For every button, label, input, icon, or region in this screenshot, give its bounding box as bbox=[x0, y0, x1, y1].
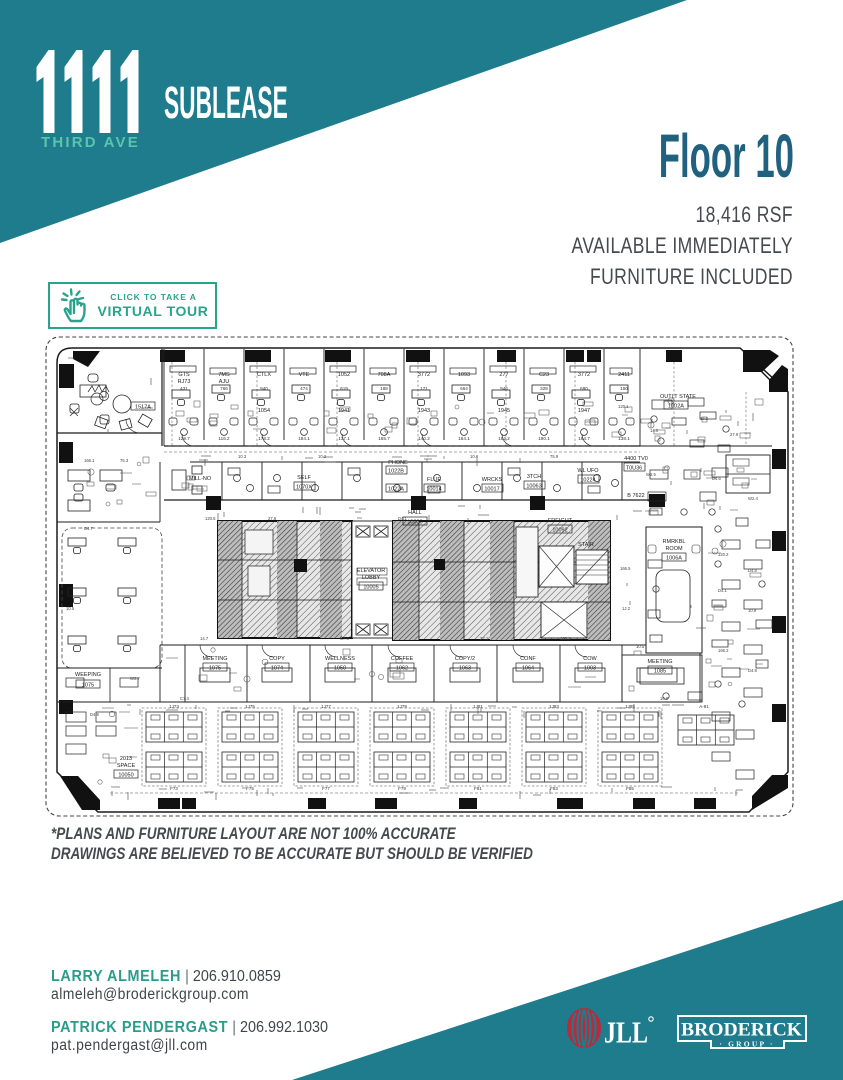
svg-text:1J.2: 1J.2 bbox=[622, 606, 631, 611]
svg-text:140.2: 140.2 bbox=[418, 436, 430, 441]
svg-text:AJU: AJU bbox=[219, 379, 229, 385]
svg-text:MEETING: MEETING bbox=[647, 659, 672, 665]
svg-text:F77: F77 bbox=[322, 786, 330, 791]
svg-text:10050: 10050 bbox=[118, 773, 133, 779]
svg-text:10224: 10224 bbox=[580, 478, 595, 484]
svg-text:FREIGHT: FREIGHT bbox=[548, 518, 573, 524]
svg-text:F83: F83 bbox=[550, 786, 558, 791]
svg-text:10.5: 10.5 bbox=[66, 606, 75, 611]
svg-text:27.1: 27.1 bbox=[480, 636, 489, 641]
svg-text:75.3: 75.3 bbox=[120, 458, 129, 463]
svg-text:RMRKBL: RMRKBL bbox=[663, 539, 686, 545]
svg-text:184.7: 184.7 bbox=[578, 436, 590, 441]
svg-text:164.1: 164.1 bbox=[458, 436, 470, 441]
svg-text:431: 431 bbox=[180, 386, 188, 391]
svg-text:F75: F75 bbox=[246, 786, 254, 791]
svg-text:C7.4: C7.4 bbox=[180, 696, 190, 701]
svg-text:328: 328 bbox=[540, 386, 548, 391]
svg-text:LOBBY: LOBBY bbox=[362, 575, 381, 581]
svg-text:664: 664 bbox=[460, 386, 468, 391]
svg-text:COPY/2: COPY/2 bbox=[455, 656, 475, 662]
svg-text:1093: 1093 bbox=[458, 372, 470, 378]
svg-text:2411: 2411 bbox=[618, 372, 630, 378]
svg-text:182.2: 182.2 bbox=[498, 436, 510, 441]
svg-text:1052: 1052 bbox=[338, 372, 350, 378]
svg-text:171: 171 bbox=[420, 386, 428, 391]
svg-text:A-81: A-81 bbox=[699, 704, 709, 709]
svg-text:C7.6: C7.6 bbox=[340, 636, 350, 641]
svg-text:166.1: 166.1 bbox=[84, 458, 95, 463]
svg-text:10.3: 10.3 bbox=[238, 454, 247, 459]
svg-text:1517A: 1517A bbox=[135, 405, 151, 411]
svg-text:T0U36: T0U36 bbox=[626, 466, 643, 472]
svg-text:WL UFO: WL UFO bbox=[577, 468, 599, 474]
svg-text:WEEPING: WEEPING bbox=[75, 672, 101, 678]
svg-text:10.5: 10.5 bbox=[636, 644, 645, 649]
svg-text:10000: 10000 bbox=[407, 520, 422, 526]
svg-text:1054: 1054 bbox=[258, 408, 270, 414]
svg-text:1075: 1075 bbox=[209, 666, 221, 672]
svg-text:1003: 1003 bbox=[584, 666, 596, 672]
svg-text:1002A: 1002A bbox=[668, 404, 684, 410]
svg-text:7MS: 7MS bbox=[218, 372, 230, 378]
svg-text:JLL: JLL bbox=[604, 1015, 648, 1050]
svg-text:1074: 1074 bbox=[271, 666, 283, 672]
svg-text:10.9: 10.9 bbox=[748, 608, 757, 613]
svg-text:D4.7: D4.7 bbox=[84, 526, 94, 531]
svg-text:116.2: 116.2 bbox=[218, 436, 230, 441]
svg-text:VTE: VTE bbox=[299, 372, 310, 378]
svg-text:COW: COW bbox=[583, 656, 597, 662]
svg-text:75.9: 75.9 bbox=[550, 454, 559, 459]
svg-text:1064: 1064 bbox=[522, 666, 534, 672]
svg-text:1945: 1945 bbox=[498, 408, 510, 414]
svg-text:FLUE: FLUE bbox=[427, 477, 441, 483]
svg-text:F79: F79 bbox=[398, 786, 406, 791]
svg-text:120.5: 120.5 bbox=[205, 516, 216, 521]
svg-text:WRCKS: WRCKS bbox=[482, 477, 503, 483]
svg-text:166.1: 166.1 bbox=[560, 636, 571, 641]
svg-text:STAIR: STAIR bbox=[578, 542, 594, 548]
svg-text:2013: 2013 bbox=[120, 756, 132, 762]
svg-text:1J79: 1J79 bbox=[397, 704, 407, 709]
svg-text:RJ73: RJ73 bbox=[178, 379, 191, 385]
svg-text:F85: F85 bbox=[626, 786, 634, 791]
svg-text:10063: 10063 bbox=[526, 484, 541, 490]
svg-text:1050: 1050 bbox=[334, 666, 346, 672]
svg-text:F73: F73 bbox=[170, 786, 178, 791]
svg-text:1J83: 1J83 bbox=[549, 704, 559, 709]
svg-text:ELEVATOR: ELEVATOR bbox=[357, 568, 385, 574]
svg-text:C23: C23 bbox=[539, 372, 549, 378]
svg-text:166.2: 166.2 bbox=[718, 648, 729, 653]
svg-text:W2.4: W2.4 bbox=[748, 496, 758, 501]
svg-text:3772: 3772 bbox=[418, 372, 430, 378]
svg-text:SELF: SELF bbox=[297, 475, 311, 481]
svg-text:1070X: 1070X bbox=[296, 485, 312, 491]
svg-text:10.9: 10.9 bbox=[660, 696, 669, 701]
svg-text:D4.8: D4.8 bbox=[748, 568, 758, 573]
svg-text:129.7: 129.7 bbox=[178, 436, 190, 441]
svg-text:1062: 1062 bbox=[396, 666, 408, 672]
svg-text:1J.2: 1J.2 bbox=[700, 416, 709, 421]
svg-text:1085: 1085 bbox=[654, 669, 666, 675]
svg-text:1941: 1941 bbox=[338, 408, 350, 414]
svg-text:1J75: 1J75 bbox=[245, 704, 255, 709]
svg-text:940: 940 bbox=[260, 386, 268, 391]
svg-text:619: 619 bbox=[340, 386, 348, 391]
svg-text:27.6: 27.6 bbox=[268, 516, 277, 521]
svg-text:1J85: 1J85 bbox=[625, 704, 635, 709]
svg-text:10014: 10014 bbox=[426, 487, 441, 493]
svg-text:1075: 1075 bbox=[82, 683, 94, 689]
svg-text:14.0: 14.0 bbox=[650, 428, 659, 433]
svg-text:1943: 1943 bbox=[418, 408, 430, 414]
svg-text:946: 946 bbox=[500, 386, 508, 391]
svg-text:10017: 10017 bbox=[484, 487, 499, 493]
svg-text:184.1: 184.1 bbox=[298, 436, 310, 441]
svg-text:D4.6: D4.6 bbox=[712, 476, 722, 481]
svg-text:F81: F81 bbox=[474, 786, 482, 791]
svg-text:14.7: 14.7 bbox=[200, 636, 209, 641]
svg-text:137.1: 137.1 bbox=[338, 436, 350, 441]
svg-text:1063: 1063 bbox=[459, 666, 471, 672]
svg-text:4400 TV0: 4400 TV0 bbox=[624, 456, 648, 462]
svg-text:D4.1: D4.1 bbox=[718, 588, 728, 593]
svg-text:OUTLT STATE: OUTLT STATE bbox=[660, 394, 696, 400]
svg-text:WELLNESS: WELLNESS bbox=[325, 656, 355, 662]
svg-text:1947: 1947 bbox=[578, 408, 590, 414]
svg-text:150: 150 bbox=[620, 386, 628, 391]
svg-text:CTLX: CTLX bbox=[257, 372, 271, 378]
svg-text:10.6: 10.6 bbox=[470, 454, 479, 459]
svg-text:1006A: 1006A bbox=[666, 556, 682, 562]
svg-text:D4.9: D4.9 bbox=[90, 712, 100, 717]
svg-text:GTS: GTS bbox=[178, 372, 190, 378]
svg-text:708A: 708A bbox=[378, 372, 391, 378]
svg-text:MILL-NO: MILL-NO bbox=[189, 476, 212, 482]
svg-text:1022B: 1022B bbox=[388, 469, 404, 475]
svg-text:188: 188 bbox=[380, 386, 388, 391]
svg-text:BRODERICK: BRODERICK bbox=[681, 1021, 803, 1041]
svg-text:474: 474 bbox=[300, 386, 308, 391]
svg-text:766: 766 bbox=[220, 386, 228, 391]
svg-text:10005: 10005 bbox=[363, 585, 378, 591]
svg-text:10092: 10092 bbox=[552, 528, 567, 534]
svg-text:165.7: 165.7 bbox=[378, 436, 390, 441]
svg-text:277: 277 bbox=[499, 372, 508, 378]
svg-text:178.2: 178.2 bbox=[258, 436, 270, 441]
svg-text:3772: 3772 bbox=[578, 372, 590, 378]
svg-text:1022A: 1022A bbox=[388, 487, 404, 493]
svg-text:W2.7: W2.7 bbox=[130, 676, 140, 681]
svg-text:· GROUP ·: · GROUP · bbox=[719, 1040, 774, 1049]
svg-text:W2.5: W2.5 bbox=[646, 472, 656, 477]
svg-text:120.2: 120.2 bbox=[718, 552, 729, 557]
svg-text:120.1: 120.1 bbox=[618, 404, 629, 409]
svg-text:1J81: 1J81 bbox=[473, 704, 483, 709]
svg-text:1J77: 1J77 bbox=[321, 704, 331, 709]
svg-text:166.5: 166.5 bbox=[620, 566, 631, 571]
svg-text:ROOM: ROOM bbox=[665, 546, 683, 552]
svg-text:COFFEE: COFFEE bbox=[391, 656, 414, 662]
svg-text:PHONE: PHONE bbox=[388, 460, 408, 466]
svg-text:27.9: 27.9 bbox=[730, 432, 739, 437]
svg-text:SPACE: SPACE bbox=[117, 763, 136, 769]
svg-text:690: 690 bbox=[580, 386, 588, 391]
svg-text:HALL: HALL bbox=[408, 510, 422, 516]
svg-text:1J73: 1J73 bbox=[169, 704, 179, 709]
svg-text:B 7622: B 7622 bbox=[627, 493, 644, 499]
svg-text:CONF: CONF bbox=[520, 656, 536, 662]
svg-text:10.2: 10.2 bbox=[318, 454, 327, 459]
svg-text:COPY: COPY bbox=[269, 656, 285, 662]
svg-text:190.1: 190.1 bbox=[538, 436, 550, 441]
svg-text:3TCH: 3TCH bbox=[527, 474, 541, 480]
svg-text:D4.9: D4.9 bbox=[748, 668, 758, 673]
svg-text:MEETING: MEETING bbox=[202, 656, 227, 662]
